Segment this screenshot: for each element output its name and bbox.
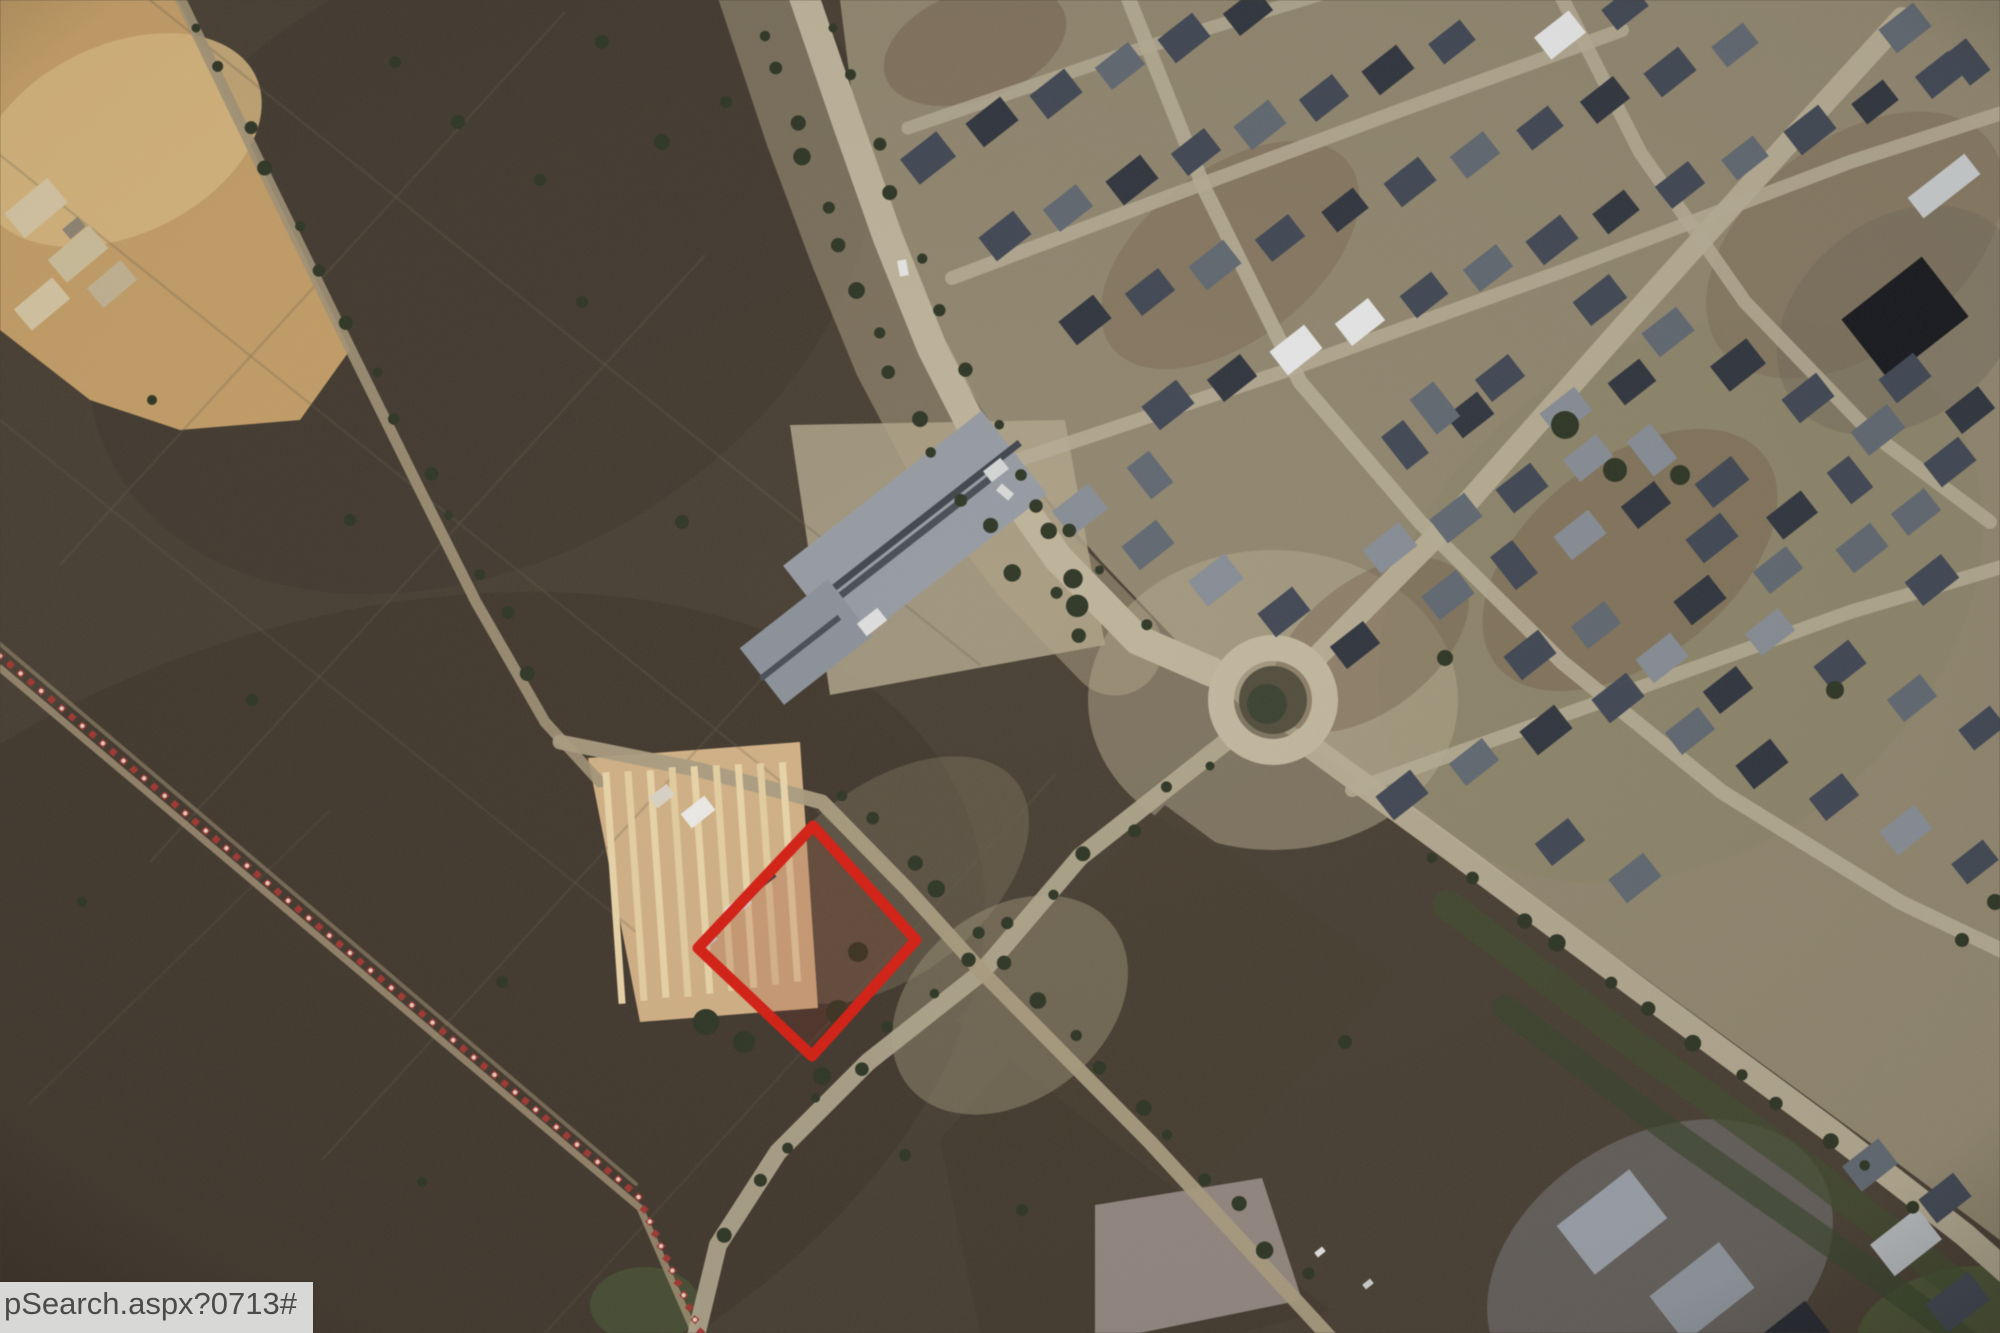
vignette-overlay bbox=[0, 0, 2000, 1333]
status-bar: pSearch.aspx?0713# bbox=[0, 1282, 313, 1333]
satellite-map[interactable]: pSearch.aspx?0713# bbox=[0, 0, 2000, 1333]
map-svg bbox=[0, 0, 2000, 1333]
status-bar-url-text: pSearch.aspx?0713# bbox=[4, 1286, 297, 1321]
